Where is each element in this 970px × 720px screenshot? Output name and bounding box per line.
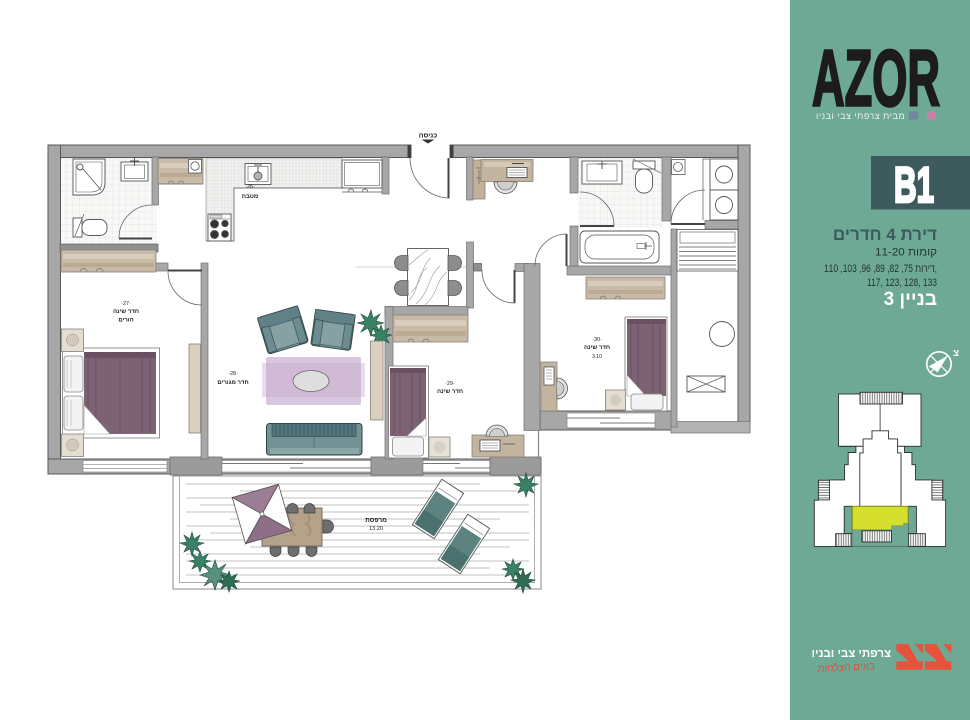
svg-text:כניסה: כניסה (419, 133, 438, 140)
svg-text:117, 123, 128, 133: 117, 123, 128, 133 (867, 277, 937, 289)
svg-text:מרפסת: מרפסת (365, 517, 387, 524)
svg-text:B1: B1 (894, 157, 934, 213)
svg-text:·29·: ·29· (445, 381, 455, 387)
svg-text:קומות 11-20: קומות 11-20 (875, 247, 937, 259)
svg-text:3.10: 3.10 (592, 354, 602, 360)
svg-text:AZOR: AZOR (812, 34, 940, 123)
svg-text:צרפתי צבי ובניו: צרפתי צבי ובניו (812, 648, 891, 660)
svg-text:בניין 3: בניין 3 (884, 289, 937, 310)
svg-text:חדר שינה: חדר שינה (113, 309, 139, 315)
svg-text:מטבח: מטבח (242, 194, 259, 200)
svg-text:·28·: ·28· (228, 371, 238, 377)
svg-text:הורים: הורים (118, 318, 133, 324)
svg-text:חדר שינה: חדר שינה (437, 389, 463, 395)
svg-text:דירת 4 חדרים: דירת 4 חדרים (833, 225, 937, 244)
svg-text:·27·: ·27· (121, 301, 131, 307)
svg-text:·26·: ·26· (245, 184, 255, 190)
svg-text:צ: צ (953, 348, 959, 359)
svg-text:13.20: 13.20 (369, 526, 383, 532)
svg-text:חדר מגורים: חדר מגורים (217, 380, 248, 386)
svg-text:חדר שינה: חדר שינה (584, 345, 610, 351)
svg-text:·30·: ·30· (592, 337, 602, 343)
svg-text:מבית צרפתי צבי ובניו: מבית צרפתי צבי ובניו (816, 111, 905, 121)
svg-text:דירות 75, 82, 89, 96, 103, 110: דירות 75, 82, 89, 96, 103, 110, (824, 263, 937, 275)
